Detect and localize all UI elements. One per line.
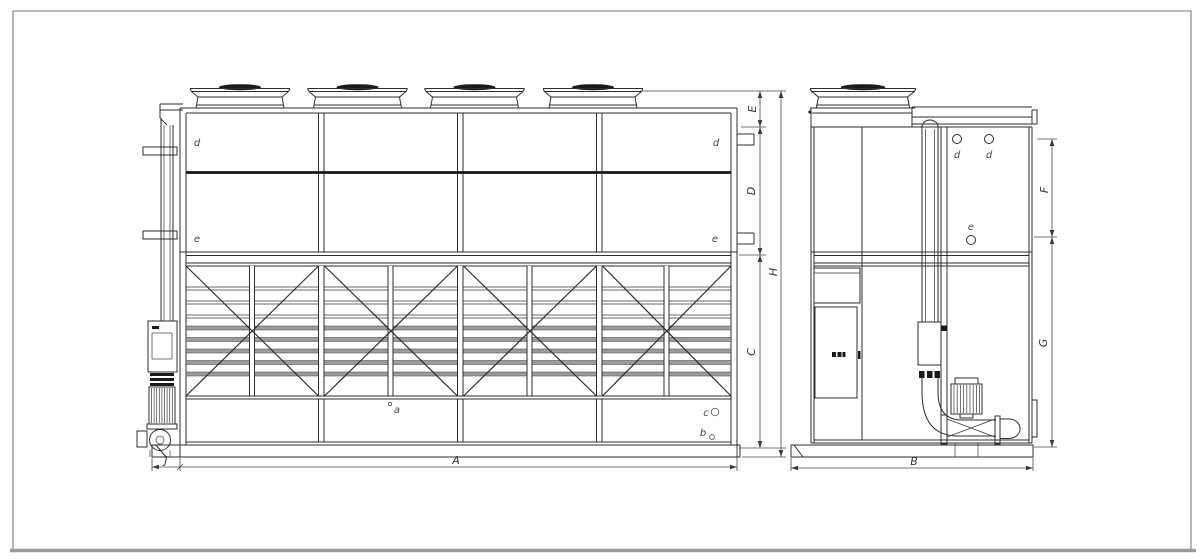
access-door	[814, 268, 861, 398]
side-view: d d e	[791, 84, 1057, 471]
inlet-stub-d	[737, 134, 754, 145]
dim-label-d: D	[745, 187, 758, 195]
port-label-d2: d	[986, 150, 993, 161]
cooling-tower-drawing: d e d e	[0, 0, 1200, 559]
dim-label-a: A	[451, 454, 460, 467]
basin-label-b: b	[700, 428, 706, 439]
drawing-sheet: d e d e	[0, 0, 1200, 559]
upper-bay-dividers	[319, 113, 603, 252]
basin-label-a: a	[394, 405, 400, 416]
pipe-bracket	[143, 231, 177, 239]
port-label-d-left: d	[194, 138, 201, 149]
pipe-bracket	[143, 147, 177, 155]
riser-pump-assembly	[137, 104, 183, 457]
port-label-d-right: d	[713, 138, 720, 149]
basin-lip	[1032, 400, 1037, 437]
port-label-e: e	[968, 222, 974, 233]
front-view: d e d e	[137, 84, 786, 471]
dim-label-c: C	[745, 348, 758, 356]
pump-volute	[150, 430, 171, 451]
dim-label-e: E	[746, 105, 759, 112]
fan-icon	[425, 84, 525, 108]
fan-icon	[190, 84, 290, 108]
dim-label-b: B	[910, 455, 918, 468]
fan-icon	[810, 84, 916, 108]
pump-end-cap	[1000, 419, 1020, 439]
dim-label-g: G	[1037, 339, 1050, 348]
fill-posts	[250, 266, 670, 396]
fan-icon	[543, 84, 643, 108]
fan-stack-row	[190, 84, 643, 108]
door-label-mark	[832, 352, 846, 357]
port-label-e-right: e	[712, 234, 718, 245]
basin: a c b	[180, 399, 737, 445]
side-deck	[810, 107, 1037, 127]
fan-icon	[308, 84, 408, 108]
port-label-e-left: e	[194, 234, 200, 245]
dim-label-j: J	[162, 454, 167, 467]
fill-louver-section	[186, 266, 731, 399]
dimension-A-J: J A	[152, 448, 737, 471]
port-label-d1: d	[954, 150, 961, 161]
dim-label-f: F	[1038, 186, 1051, 193]
pipe-box	[918, 322, 941, 365]
dim-label-h: H	[767, 268, 780, 276]
base-channel	[152, 445, 740, 457]
door-handle	[858, 351, 861, 359]
side-casing	[811, 127, 1037, 443]
inlet-stub-e	[737, 233, 754, 244]
side-ports: d d e	[953, 135, 994, 245]
sensor-box	[942, 326, 948, 332]
basin-label-c: c	[703, 408, 709, 419]
